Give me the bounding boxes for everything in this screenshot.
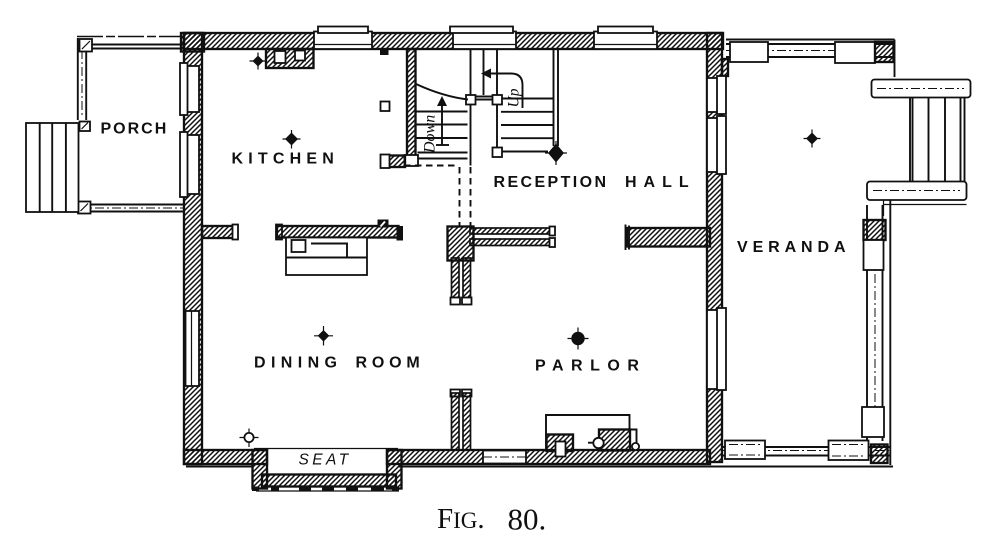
svg-text:Up: Up [506, 88, 523, 107]
svg-text:KITCHEN: KITCHEN [232, 151, 340, 168]
svg-text:PARLOR: PARLOR [535, 358, 646, 375]
svg-text:PORCH: PORCH [101, 121, 169, 138]
svg-text:FIG.: FIG. [437, 503, 485, 535]
svg-text:80.: 80. [508, 502, 547, 537]
svg-text:ROOM: ROOM [356, 355, 425, 372]
svg-text:SEAT: SEAT [299, 452, 352, 469]
svg-text:HALL: HALL [625, 174, 696, 191]
svg-text:VERANDA: VERANDA [737, 239, 850, 256]
svg-text:Down: Down [422, 115, 439, 154]
svg-text:RECEPTION: RECEPTION [494, 174, 609, 191]
svg-text:DINING: DINING [254, 355, 342, 372]
